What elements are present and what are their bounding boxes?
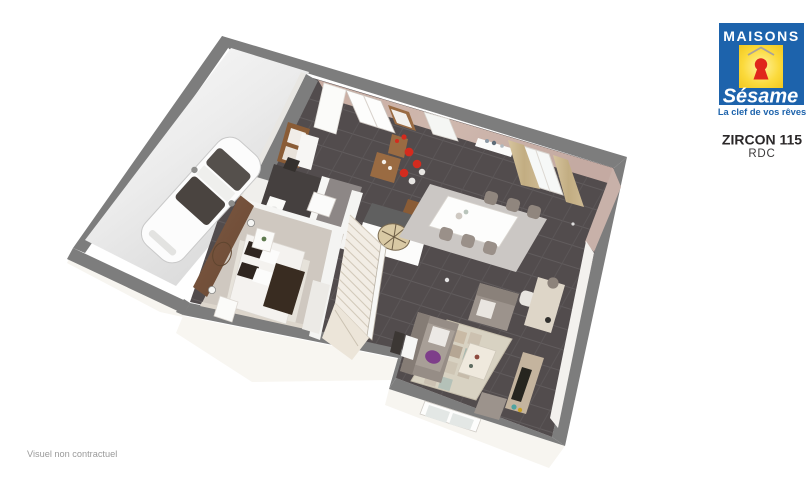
svg-text:Visuel non contractuel: Visuel non contractuel [27, 449, 117, 459]
svg-text:ZIRCON 115: ZIRCON 115 [722, 132, 802, 148]
svg-text:La clef de vos rêves: La clef de vos rêves [718, 107, 806, 117]
svg-text:Sésame: Sésame [723, 86, 799, 108]
svg-text:RDC: RDC [748, 148, 775, 160]
svg-text:MAISONS: MAISONS [723, 28, 800, 44]
